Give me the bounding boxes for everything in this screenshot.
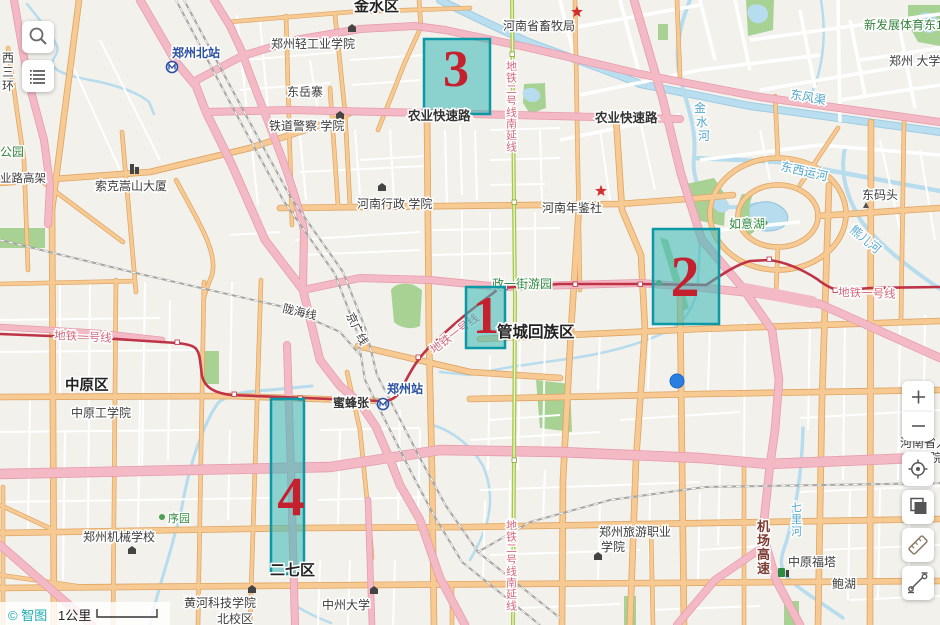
svg-text:索克嵩山大厦: 索克嵩山大厦: [95, 179, 167, 193]
svg-text:郑州站: 郑州站: [387, 381, 423, 396]
svg-text:河南省畜牧局: 河南省畜牧局: [503, 18, 575, 33]
svg-text:2: 2: [671, 244, 700, 309]
svg-text:东岳寨: 东岳寨: [287, 84, 323, 99]
svg-text:郑州北站: 郑州北站: [172, 45, 220, 60]
svg-text:管城回族区: 管城回族区: [497, 322, 575, 341]
svg-text:机场高速: 机场高速: [757, 519, 770, 576]
svg-text:公园: 公园: [0, 145, 24, 159]
svg-text:郑州轻工业学院: 郑州轻工业学院: [271, 36, 355, 51]
svg-text:3: 3: [443, 41, 469, 98]
svg-text:东码头: 东码头: [862, 188, 898, 202]
svg-text:如意湖: 如意湖: [729, 216, 765, 231]
svg-text:铁道警察 学院: 铁道警察 学院: [269, 118, 344, 133]
svg-text:西三环: 西三环: [2, 51, 14, 93]
svg-text:地铁二号线南延线: 地铁二号线南延线: [506, 60, 517, 154]
svg-text:金水区: 金水区: [353, 0, 399, 15]
svg-text:4: 4: [277, 466, 305, 527]
svg-text:中原福塔: 中原福塔: [788, 554, 836, 569]
svg-text:中州大学: 中州大学: [322, 597, 370, 612]
svg-text:业路高架: 业路高架: [0, 171, 46, 185]
svg-text:农业快速路: 农业快速路: [407, 108, 471, 123]
svg-text:二七区: 二七区: [270, 562, 315, 579]
svg-text:序园: 序园: [168, 511, 190, 525]
svg-text:中原工学院: 中原工学院: [71, 405, 131, 420]
svg-text:郑州机械学校: 郑州机械学校: [83, 529, 155, 544]
svg-text:蜜蜂张: 蜜蜂张: [333, 395, 370, 410]
svg-text:郑州 大学第: 郑州 大学第: [889, 53, 940, 68]
svg-text:河南年鉴社: 河南年鉴社: [542, 200, 602, 215]
svg-text:中原区: 中原区: [65, 376, 109, 394]
svg-text:新发展体育东1: 新发展体育东1: [864, 17, 940, 32]
svg-text:七里河: 七里河: [791, 501, 802, 538]
svg-text:河南行政 学院: 河南行政 学院: [357, 196, 432, 211]
svg-text:鲍湖: 鲍湖: [832, 576, 856, 591]
svg-text:地铁二号线南延线: 地铁二号线南延线: [506, 519, 517, 613]
svg-text:1: 1: [473, 287, 500, 345]
svg-text:农业快速路: 农业快速路: [594, 110, 658, 125]
